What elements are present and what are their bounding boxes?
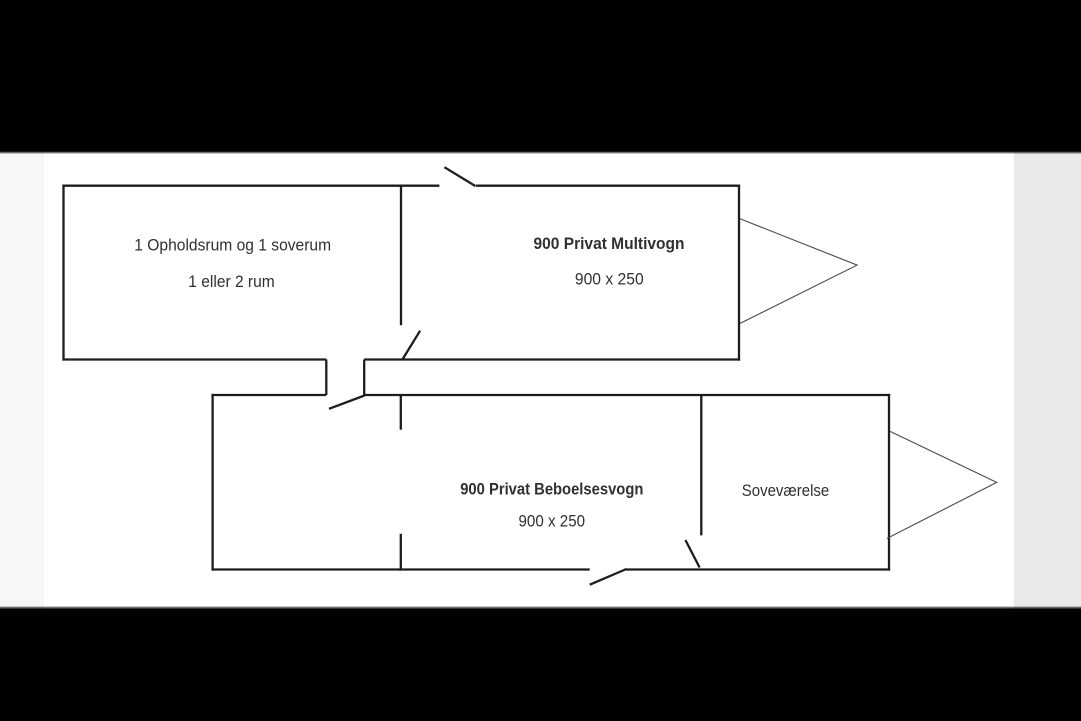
svg-text:1 eller 2 rum: 1 eller 2 rum xyxy=(188,272,274,291)
svg-text:900 x 250: 900 x 250 xyxy=(575,269,644,288)
svg-text:900 Privat Beboelsesvogn: 900 Privat Beboelsesvogn xyxy=(460,480,643,499)
svg-text:Soveværelse: Soveværelse xyxy=(742,481,830,500)
svg-text:900 Privat Multivogn: 900 Privat Multivogn xyxy=(534,234,685,253)
svg-text:1 Opholdsrum og 1 soverum: 1 Opholdsrum og 1 soverum xyxy=(134,236,331,255)
svg-text:900 x 250: 900 x 250 xyxy=(519,512,586,531)
